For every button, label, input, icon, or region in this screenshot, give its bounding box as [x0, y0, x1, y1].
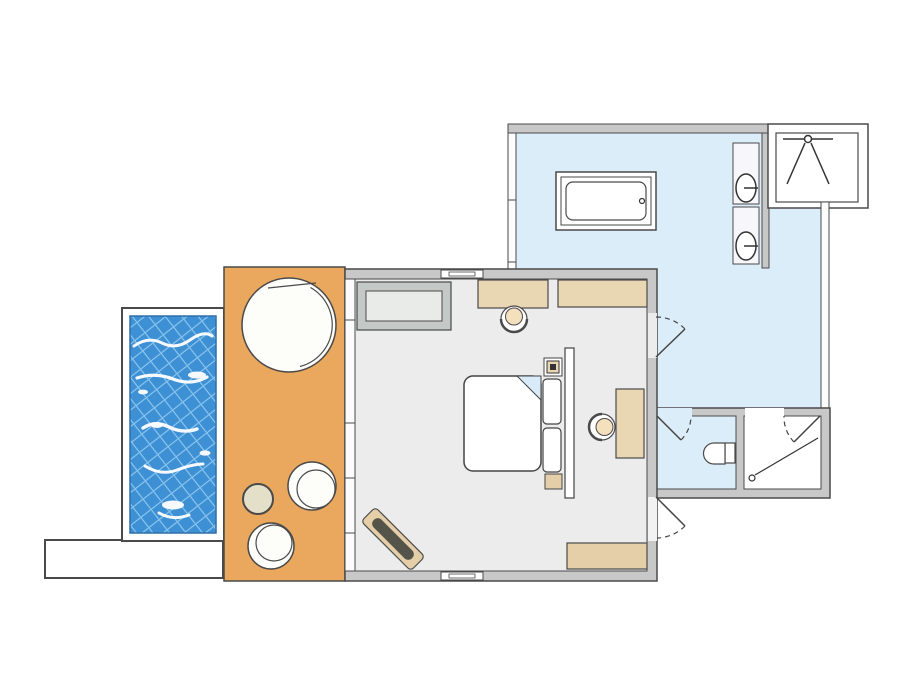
- wc-door-opening: [657, 408, 692, 417]
- floor-plan-svg: [0, 0, 900, 675]
- writing-desk-chair-cushion: [596, 419, 613, 436]
- bedroom-window-top: [441, 270, 483, 278]
- pool-water: [130, 316, 216, 533]
- shower-room-drain: [749, 475, 755, 481]
- wardrobe-cabinet: [558, 280, 647, 307]
- bedroom-bathroom-door-opening: [648, 313, 657, 358]
- pool-reflection: [138, 390, 148, 395]
- door-leaf-bedroom-exterior: [656, 497, 685, 526]
- bed-headboard: [565, 348, 574, 498]
- sliding-glass-wall: [345, 279, 355, 571]
- shower-cabin-floor: [776, 133, 858, 202]
- deck-chair-seat: [256, 525, 292, 561]
- door-swing-bedroom-exterior: [657, 526, 685, 538]
- pool-reflection: [162, 501, 184, 510]
- nightstand-lamp-core: [550, 364, 556, 370]
- pool-side-ledge: [45, 540, 223, 578]
- bed-pillow: [543, 379, 561, 424]
- writing-desk: [616, 389, 644, 458]
- bathroom-right-wall: [821, 202, 829, 412]
- toilet-tank: [725, 443, 735, 463]
- pool-reflection: [151, 422, 163, 428]
- bed-pillow: [543, 428, 561, 472]
- bathtub-basin: [566, 182, 646, 220]
- dressing-desk: [478, 280, 548, 308]
- floor-plan-page: [0, 0, 900, 675]
- luggage-bench: [567, 543, 647, 569]
- desk-chair-cushion: [506, 308, 523, 325]
- bathroom-top-wall: [508, 124, 768, 133]
- bathtub-drain: [640, 199, 645, 204]
- shower-head-icon: [805, 136, 812, 143]
- toilet-bowl: [704, 443, 726, 464]
- deck-chair-seat: [297, 470, 335, 508]
- pool-reflection: [200, 450, 211, 455]
- nightstand-bottom: [545, 474, 562, 489]
- sofa-cushion: [366, 291, 442, 321]
- pool-reflection: [188, 372, 206, 379]
- bedroom-window-bottom: [441, 572, 483, 580]
- bedroom-exterior-door-opening: [648, 497, 657, 541]
- bed-duvet: [464, 376, 541, 471]
- round-daybed: [242, 278, 336, 372]
- deck-side-table: [243, 484, 273, 514]
- bathroom-window-wall: [508, 133, 516, 269]
- shower-room-door-opening: [745, 408, 784, 417]
